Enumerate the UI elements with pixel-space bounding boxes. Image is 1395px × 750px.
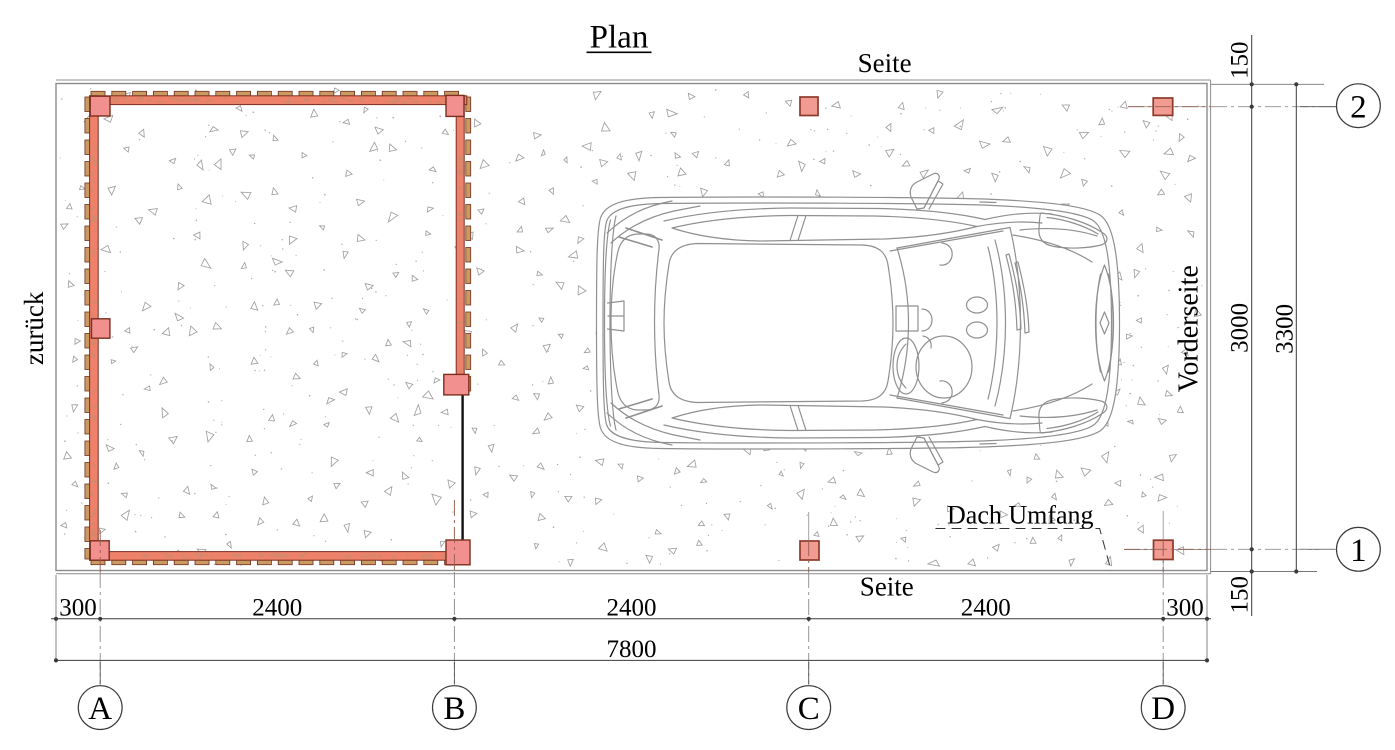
svg-text:A: A <box>88 691 112 727</box>
svg-text:zurück: zurück <box>19 291 49 365</box>
svg-text:2: 2 <box>1350 89 1367 125</box>
svg-text:2400: 2400 <box>961 595 1011 622</box>
svg-text:Plan: Plan <box>590 20 649 56</box>
svg-text:2400: 2400 <box>252 595 302 622</box>
svg-text:B: B <box>443 691 465 727</box>
svg-text:7800: 7800 <box>607 636 657 663</box>
svg-text:150: 150 <box>1227 41 1254 78</box>
svg-text:Vorderseite: Vorderseite <box>1174 265 1205 392</box>
svg-text:3300: 3300 <box>1272 304 1299 354</box>
svg-text:2400: 2400 <box>607 595 657 622</box>
svg-text:150: 150 <box>1227 576 1254 614</box>
svg-text:Seite: Seite <box>860 571 914 601</box>
svg-text:Seite: Seite <box>858 48 912 78</box>
svg-text:300: 300 <box>59 595 97 622</box>
svg-text:Dach Umfang: Dach Umfang <box>947 500 1094 529</box>
svg-text:3000: 3000 <box>1227 303 1254 353</box>
svg-text:C: C <box>798 691 820 727</box>
svg-text:1: 1 <box>1350 533 1367 569</box>
svg-text:D: D <box>1151 691 1175 727</box>
svg-text:300: 300 <box>1166 595 1204 622</box>
